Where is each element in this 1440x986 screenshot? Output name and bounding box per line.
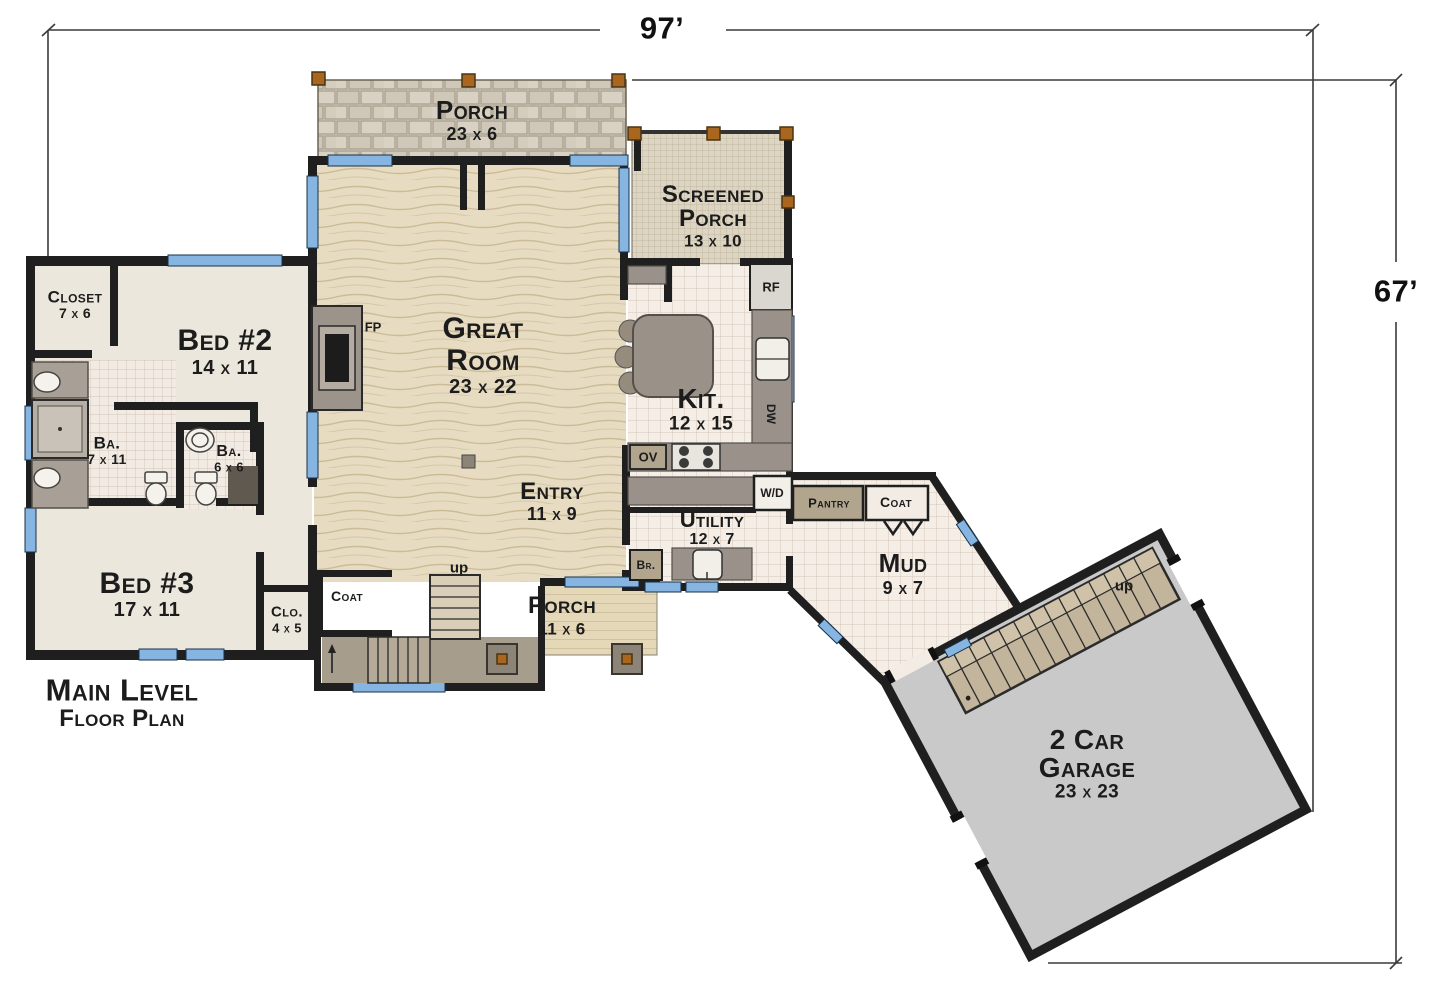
bed2-size: 14 x 11 — [192, 358, 259, 378]
kitchen-label: Kit. — [677, 385, 724, 413]
fireplace-label: FP — [365, 321, 382, 334]
stairs-up-garage-label: up — [1115, 579, 1133, 594]
screened-porch-label-2: Porch — [679, 207, 747, 231]
bath6-size: 6 x 6 — [214, 461, 244, 474]
entry-label: Entry — [520, 480, 584, 504]
great-room-label-2: Room — [446, 346, 519, 376]
screened-porch-size: 13 x 10 — [684, 233, 742, 250]
coat-left-label: Coat — [331, 589, 363, 603]
fireplace-icon — [312, 306, 362, 410]
garage-label-2: Garage — [1039, 754, 1135, 782]
stairs-up-main-label: up — [450, 561, 468, 576]
closet-size: 7 x 6 — [59, 306, 91, 320]
kitchen-size: 12 x 15 — [669, 415, 733, 434]
coat-right-label: Coat — [880, 495, 912, 509]
pantry-label: Pantry — [808, 497, 850, 510]
porch-bottom-label: Porch — [528, 594, 596, 618]
shower-icon — [32, 400, 88, 458]
bath7-label: Ba. — [94, 435, 121, 452]
dimension-width: 97’ — [640, 13, 684, 44]
washer-dryer-label: W/D — [760, 487, 783, 499]
bath6-label: Ba. — [216, 444, 241, 460]
great-room-label-1: Great — [443, 314, 524, 344]
porch-top-label: Porch — [436, 97, 508, 123]
mud-label: Mud — [879, 550, 928, 576]
bed2-label: Bed #2 — [178, 326, 273, 356]
garage-size: 23 x 23 — [1055, 783, 1119, 802]
screened-porch-label-1: Screened — [662, 183, 764, 207]
fridge-label: RF — [762, 281, 779, 294]
stove-icon — [672, 444, 720, 470]
clo-size: 4 x 5 — [272, 622, 302, 635]
porch-top-size: 23 x 6 — [446, 125, 497, 143]
dishwasher-label: DW — [765, 404, 777, 424]
utility-size: 12 x 7 — [689, 532, 734, 548]
mud-size: 9 x 7 — [883, 579, 924, 597]
entry-post — [462, 455, 475, 468]
plan-title: Main Level — [46, 675, 199, 706]
plan-subtitle: Floor Plan — [59, 707, 184, 731]
garage-label-1: 2 Car — [1050, 726, 1124, 754]
floor-plan-canvas: 97’ 67’ Porch 23 x 6 Screened Porch 13 x… — [0, 0, 1440, 986]
oven-label: OV — [639, 451, 658, 464]
entry-size: 11 x 9 — [527, 505, 577, 523]
broom-closet-label: Br. — [637, 559, 656, 571]
clo-label: Clo. — [271, 605, 303, 620]
floor-plan-drawing — [0, 0, 1440, 986]
closet-label: Closet — [48, 289, 103, 306]
porch-bottom-size: 11 x 6 — [538, 621, 585, 638]
great-room-size: 23 x 22 — [449, 377, 517, 397]
bed3-size: 17 x 11 — [114, 600, 181, 620]
bed3-label: Bed #3 — [100, 569, 195, 599]
utility-label: Utility — [680, 509, 745, 531]
bath7-size: 7 x 11 — [87, 452, 126, 466]
dimension-height: 67’ — [1374, 276, 1418, 307]
